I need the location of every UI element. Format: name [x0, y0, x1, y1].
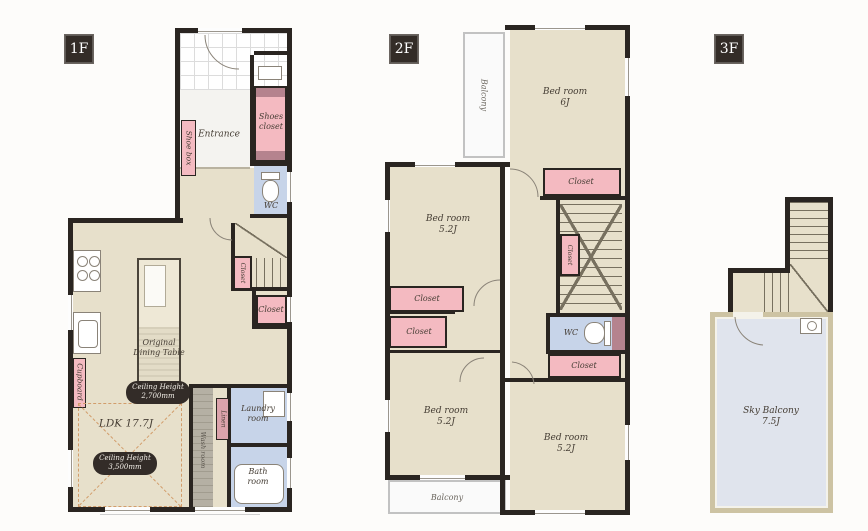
window [105, 507, 150, 512]
wall [828, 197, 833, 313]
window [287, 393, 292, 421]
label-wc-2f: WC [564, 328, 578, 338]
wall [540, 196, 630, 200]
label-dining-table: Original Dining Table [133, 338, 184, 358]
window [625, 425, 630, 460]
door-arc [508, 167, 540, 199]
badge-ceiling-height-b: Ceiling Height 3,500mm [93, 452, 157, 475]
shoes-closet-shelf [256, 151, 285, 160]
dining-table [137, 258, 181, 392]
wall [250, 214, 292, 218]
window [287, 172, 292, 202]
porch-step-stone [258, 66, 282, 80]
label-shoe-box: Shoe box [185, 131, 194, 166]
window [535, 25, 585, 30]
label-bedroom-b: Bed room 5.2J [424, 406, 468, 429]
label-linen: Linen [220, 410, 227, 427]
floor-plan-canvas: 1F [0, 0, 868, 531]
toilet-tank-icon [261, 172, 280, 180]
wall [287, 28, 292, 512]
sink-bowl-icon [78, 320, 98, 348]
window [415, 162, 455, 167]
wall [500, 162, 505, 515]
stairs-1f-upper [235, 223, 287, 258]
door-arc [203, 33, 241, 71]
wall [785, 202, 790, 268]
label-wc-1f: WC [264, 201, 278, 211]
floor-tag-2f-label: 2F [395, 41, 414, 57]
wall [68, 507, 292, 512]
door-arc [458, 356, 486, 384]
stairs-3f-winder [790, 264, 828, 312]
window [625, 58, 630, 96]
label-shoes-closet: Shoes closet [259, 112, 283, 132]
label-wash-room: Wash room [199, 432, 207, 469]
wall [728, 268, 790, 273]
label-bedroom-a: Bed room 5.2J [426, 214, 470, 237]
label-balcony-bottom: Balcony [431, 493, 463, 503]
label-ldk: LDK 17.7J [99, 417, 153, 430]
label-stair-closet-1f: Closet [239, 263, 247, 284]
badge-ceiling-height-a: Ceiling Height 2,700mm [126, 381, 190, 404]
terrace-step-line [100, 514, 260, 515]
wall [254, 51, 292, 55]
window [287, 297, 292, 322]
window [385, 400, 390, 432]
dining-table-top [144, 265, 166, 307]
door-arc [472, 278, 502, 308]
stairs-3f-upper [790, 202, 828, 264]
door-arc [208, 216, 234, 242]
label-closet-c: Closet [571, 361, 597, 371]
stove-burner-icon [89, 256, 100, 267]
window [68, 295, 73, 330]
label-bath: Bath room [247, 467, 268, 487]
label-entrance: Entrance [198, 129, 240, 140]
door-arc [733, 315, 765, 347]
label-cupboard: Cupboard [76, 363, 85, 401]
label-sky-balcony: Sky Balcony 7.5J [743, 406, 799, 429]
window [287, 458, 292, 488]
label-closet-1f: Closet [258, 305, 284, 315]
window [385, 200, 390, 232]
stairs-1f-lower [256, 258, 287, 287]
label-closet-b: Closet [406, 327, 432, 337]
label-closet-a: Closet [414, 294, 440, 304]
toilet-icon [262, 180, 279, 202]
window [420, 475, 465, 480]
door-arc [510, 360, 536, 386]
window [68, 450, 73, 487]
wall [785, 197, 833, 202]
label-laundry: Laundry room [241, 404, 275, 424]
label-bedroom-c: Bed room 5.2J [544, 433, 588, 456]
floor-tag-2f: 2F [389, 34, 419, 64]
toilet-tank-icon [604, 321, 611, 346]
floor-tag-3f: 3F [714, 34, 744, 64]
floor-tag-1f-label: 1F [70, 41, 89, 57]
shoes-closet-shelf [256, 88, 285, 97]
wall [385, 350, 505, 353]
toilet-icon [584, 322, 605, 344]
floor-tag-3f-label: 3F [720, 41, 739, 57]
label-bedroom-6j: Bed room 6J [543, 87, 587, 110]
wall [175, 28, 180, 223]
slop-sink-drain-icon [807, 321, 817, 331]
label-balcony-top: Balcony [480, 79, 489, 111]
floor-tag-1f: 1F [64, 34, 94, 64]
wall [68, 218, 183, 223]
stove-burner-icon [77, 256, 88, 267]
stove-burner-icon [77, 270, 88, 281]
wall [252, 325, 292, 329]
window [195, 507, 245, 512]
stairs-3f-landing-treads [764, 273, 790, 312]
wc-shelf-2f [612, 317, 625, 350]
window [535, 510, 585, 515]
label-stair-closet-2f: Closet [566, 245, 574, 266]
stove-burner-icon [89, 270, 100, 281]
wall [728, 273, 733, 312]
label-closet-6j: Closet [568, 177, 594, 187]
